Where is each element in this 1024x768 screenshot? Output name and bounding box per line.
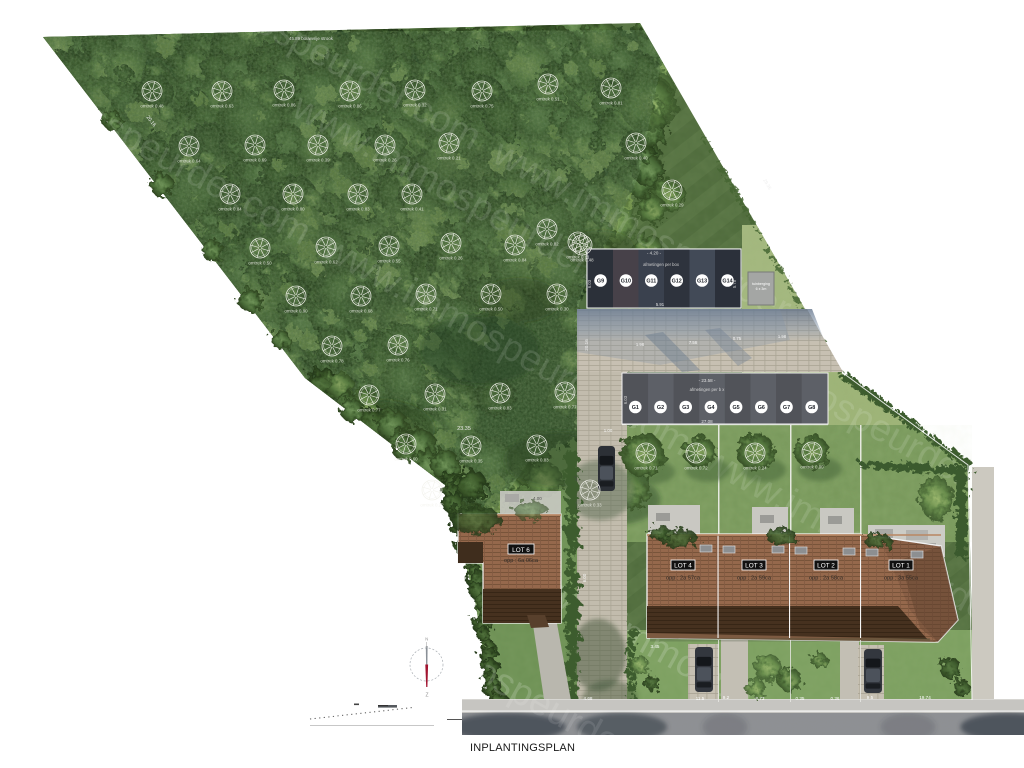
svg-text:G9: G9 — [597, 279, 604, 285]
svg-text:afmetingen per b x: afmetingen per b x — [690, 387, 726, 392]
svg-text:LOT 3: LOT 3 — [745, 563, 763, 570]
svg-text:omtrek 0.21: omtrek 0.21 — [437, 156, 461, 161]
svg-text:omtrek 0.77: omtrek 0.77 — [357, 408, 381, 413]
svg-text:omtrek 0.60: omtrek 0.60 — [394, 457, 418, 462]
svg-text:omtrek 0.39: omtrek 0.39 — [306, 158, 330, 163]
svg-text:G10: G10 — [621, 279, 631, 285]
svg-text:omtrek 0.84: omtrek 0.84 — [218, 207, 242, 212]
svg-text:1.98: 1.98 — [778, 334, 787, 339]
svg-text:8.73: 8.73 — [756, 696, 765, 701]
svg-text:G7: G7 — [783, 405, 790, 411]
svg-text:omtrek 0.82: omtrek 0.82 — [535, 242, 559, 247]
svg-text:G2: G2 — [657, 405, 664, 411]
svg-text:11.5: 11.5 — [696, 696, 705, 701]
svg-text:afmetingen per box: afmetingen per box — [643, 262, 680, 267]
svg-text:6.00: 6.00 — [582, 573, 587, 582]
svg-text:omtrek 0.71: omtrek 0.71 — [414, 307, 438, 312]
svg-text:omtrek 0.33: omtrek 0.33 — [578, 503, 602, 508]
svg-text:omtrek 0.83: omtrek 0.83 — [488, 406, 512, 411]
svg-text:LOT 4: LOT 4 — [674, 563, 692, 570]
svg-text:omtrek 0.90: omtrek 0.90 — [284, 309, 308, 314]
svg-text:omtrek 0.51: omtrek 0.51 — [536, 97, 560, 102]
svg-text:omtrek 0.63: omtrek 0.63 — [210, 104, 234, 109]
svg-text:- 4.20 -: - 4.20 - — [647, 251, 662, 256]
svg-text:omtrek 0.84: omtrek 0.84 — [503, 258, 527, 263]
svg-text:4.00: 4.00 — [533, 496, 542, 501]
svg-text:omtrek 0.77: omtrek 0.77 — [553, 405, 577, 410]
svg-text:N: N — [425, 637, 428, 642]
svg-text:omtrek 0.72: omtrek 0.72 — [684, 466, 708, 471]
svg-text:omtrek 0.35: omtrek 0.35 — [459, 459, 483, 464]
svg-text:- 23.58 -: - 23.58 - — [699, 378, 716, 383]
svg-text:6 x 3m: 6 x 3m — [756, 287, 767, 291]
svg-text:opp : 2a 58ca: opp : 2a 58ca — [809, 576, 844, 582]
svg-text:opp : 3a 55ca: opp : 3a 55ca — [884, 576, 919, 582]
svg-text:omtrek 0.55: omtrek 0.55 — [377, 259, 401, 264]
svg-text:omtrek 0.50: omtrek 0.50 — [479, 307, 503, 312]
svg-text:omtrek 0.78: omtrek 0.78 — [320, 359, 344, 364]
svg-text:G11: G11 — [646, 279, 656, 285]
svg-text:LOT 2: LOT 2 — [817, 563, 835, 570]
svg-text:omtrek 0.26: omtrek 0.26 — [439, 256, 463, 261]
svg-text:5.78: 5.78 — [732, 279, 737, 288]
svg-text:tuinberging: tuinberging — [752, 282, 770, 286]
svg-text:omtrek 0.30: omtrek 0.30 — [545, 307, 569, 312]
svg-text:omtrek 0.32: omtrek 0.32 — [403, 103, 427, 108]
svg-text:LOT 1: LOT 1 — [892, 563, 910, 570]
svg-text:0.75: 0.75 — [733, 336, 742, 341]
svg-text:omtrek 0.81: omtrek 0.81 — [599, 101, 623, 106]
svg-text:omtrek 0.50: omtrek 0.50 — [248, 261, 272, 266]
svg-text:45.89 bouwvrije strook: 45.89 bouwvrije strook — [289, 36, 334, 41]
svg-text:omtrek 0.26: omtrek 0.26 — [373, 158, 397, 163]
svg-text:opp : 6a 06ca: opp : 6a 06ca — [504, 558, 539, 564]
svg-text:omtrek 0.22: omtrek 0.22 — [420, 503, 444, 508]
svg-text:5.91: 5.91 — [656, 302, 665, 307]
svg-text:G1: G1 — [632, 405, 639, 411]
svg-text:G8: G8 — [808, 405, 815, 411]
svg-text:omtrek 0.71: omtrek 0.71 — [634, 466, 658, 471]
svg-text:9.2: 9.2 — [723, 695, 730, 700]
svg-text:6.03: 6.03 — [623, 395, 628, 404]
svg-text:Z: Z — [425, 693, 428, 699]
svg-text:omtrek 0.76: omtrek 0.76 — [386, 358, 410, 363]
svg-text:omtrek 0.29: omtrek 0.29 — [660, 203, 684, 208]
svg-text:7.56: 7.56 — [689, 340, 698, 345]
svg-text:omtrek 0.40: omtrek 0.40 — [624, 156, 648, 161]
svg-text:G13: G13 — [697, 279, 707, 285]
svg-text:omtrek 0.48: omtrek 0.48 — [140, 104, 164, 109]
svg-text:opp : 2a 57ca: opp : 2a 57ca — [666, 576, 701, 582]
svg-text:omtrek 0.75: omtrek 0.75 — [470, 104, 494, 109]
svg-text:omtrek 0.86: omtrek 0.86 — [272, 103, 296, 108]
svg-text:G6: G6 — [758, 405, 765, 411]
svg-text:omtrek 0.31: omtrek 0.31 — [423, 407, 447, 412]
svg-text:9.5: 9.5 — [867, 695, 874, 700]
svg-text:omtrek 0.69: omtrek 0.69 — [243, 158, 267, 163]
svg-text:3.45: 3.45 — [651, 644, 660, 649]
svg-text:1.00: 1.00 — [604, 428, 613, 433]
svg-text:G5: G5 — [732, 405, 739, 411]
svg-text:1.98: 1.98 — [636, 342, 645, 347]
svg-text:0.35: 0.35 — [796, 696, 805, 701]
svg-text:LOT 6: LOT 6 — [512, 547, 530, 554]
svg-text:23.35: 23.35 — [457, 426, 471, 432]
svg-text:omtrek 0.64: omtrek 0.64 — [177, 159, 201, 164]
svg-text:omtrek 0.86: omtrek 0.86 — [338, 104, 362, 109]
svg-text:27.08: 27.08 — [701, 419, 713, 424]
svg-text:0.36: 0.36 — [831, 696, 840, 701]
svg-text:G4: G4 — [707, 405, 714, 411]
svg-text:omtrek 0.62: omtrek 0.62 — [314, 260, 338, 265]
svg-text:6.03: 6.03 — [587, 279, 592, 288]
svg-text:G12: G12 — [672, 279, 682, 285]
svg-text:opp : 2a 59ca: opp : 2a 59ca — [737, 576, 772, 582]
svg-text:G3: G3 — [682, 405, 689, 411]
svg-text:omtrek 0.90: omtrek 0.90 — [800, 465, 824, 470]
svg-text:omtrek 0.83: omtrek 0.83 — [525, 458, 549, 463]
svg-text:omtrek 0.41: omtrek 0.41 — [400, 207, 424, 212]
svg-text:20.16: 20.16 — [584, 339, 589, 351]
svg-text:omtrek 0.83: omtrek 0.83 — [346, 207, 370, 212]
svg-text:4.68: 4.68 — [584, 696, 593, 701]
svg-text:INPLANTINGSPLAN: INPLANTINGSPLAN — [470, 742, 575, 754]
svg-text:omtrek 0.80: omtrek 0.80 — [281, 207, 305, 212]
svg-text:omtrek 0.24: omtrek 0.24 — [743, 466, 767, 471]
svg-text:19.74: 19.74 — [919, 695, 931, 700]
svg-text:omtrek 0.48: omtrek 0.48 — [570, 258, 594, 263]
svg-text:omtrek 0.68: omtrek 0.68 — [349, 309, 373, 314]
